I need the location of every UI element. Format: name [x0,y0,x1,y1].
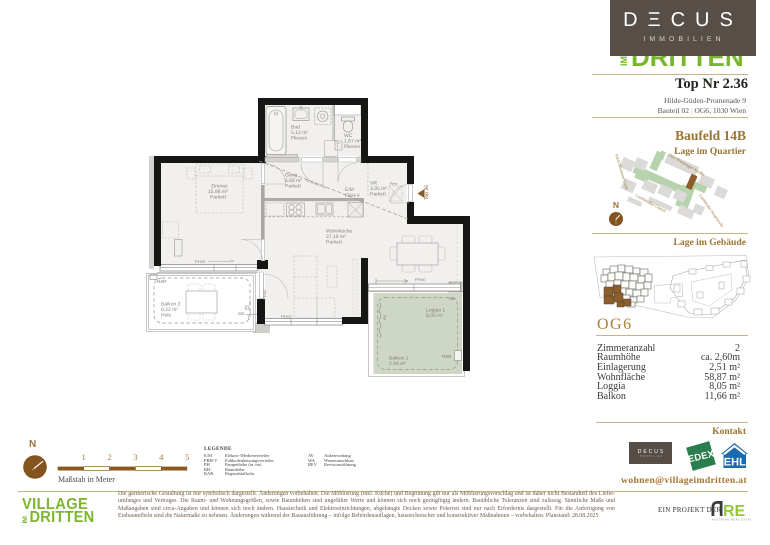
svg-text:1: 1 [81,452,85,462]
svg-text:Parkett: Parkett [210,195,226,201]
svg-text:AUSTRIAN REAL ESTATE: AUSTRIAN REAL ESTATE [712,519,752,522]
svg-text:AV: AV [382,315,387,320]
svg-text:Parkett: Parkett [370,192,386,198]
svg-text:RE: RE [723,503,746,520]
svg-text:WA: WA [238,311,245,316]
svg-text:Holz: Holz [161,313,172,319]
svg-text:WA: WA [449,296,456,301]
svg-text:8,05 m²: 8,05 m² [426,313,443,319]
svg-text:2,44 m²: 2,44 m² [389,361,406,367]
svg-text:Top 36: Top 36 [424,185,430,200]
svg-text:PH±0: PH±0 [262,289,267,300]
svg-text:Rev: Rev [390,181,397,186]
svg-text:Parkett: Parkett [285,184,301,190]
svg-text:2: 2 [107,452,111,462]
svg-text:3: 3 [133,452,137,462]
svg-text:FBH-V: FBH-V [345,193,361,199]
svg-text:RAR: RAR [442,354,452,359]
svg-text:Fliesen: Fliesen [344,144,360,150]
svg-text:RAR: RAR [157,279,167,284]
svg-text:IMMOBILIEN: IMMOBILIEN [643,36,724,43]
svg-text:PH±0: PH±0 [195,259,206,264]
svg-text:PH±0: PH±0 [415,277,426,282]
svg-text:DΞCUS: DΞCUS [623,9,743,31]
svg-text:PH±0: PH±0 [281,314,292,319]
svg-text:4: 4 [159,452,164,462]
svg-text:Parkett: Parkett [326,240,342,246]
svg-text:5: 5 [185,452,189,462]
svg-text:Fliesen: Fliesen [291,136,307,142]
svg-text:EHL: EHL [724,456,746,468]
svg-text:AV: AV [244,305,249,310]
